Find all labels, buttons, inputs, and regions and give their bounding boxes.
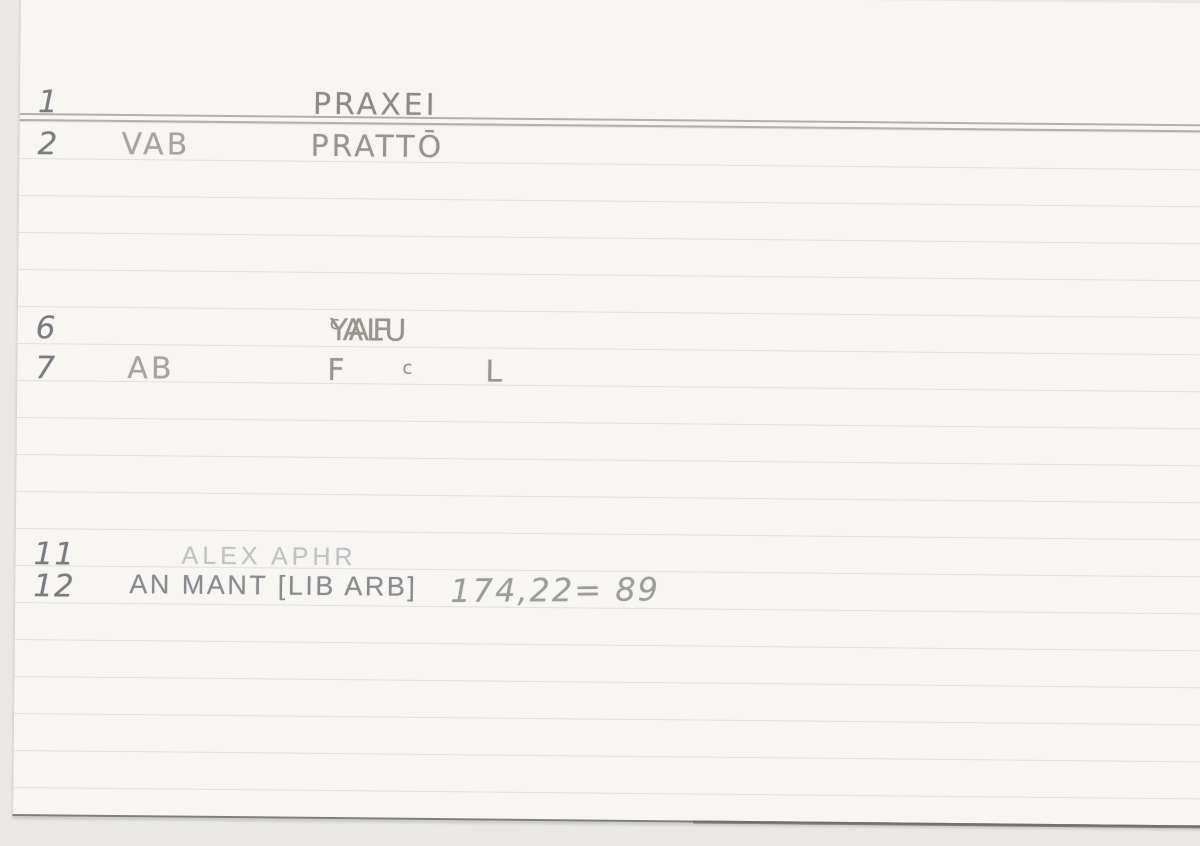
entry-number: 12 (33, 568, 75, 604)
headword-part-post: ALU (343, 313, 410, 349)
ruled-line (16, 491, 1200, 504)
entry-number: 1 (38, 84, 59, 120)
ruled-line (18, 269, 1200, 282)
index-card: 1 PRAXEI 2 VAB PRATTŌ 6 YAFcALU 7 AB F c… (12, 0, 1200, 828)
entry-abbreviation: AB (127, 351, 174, 386)
ruled-line (14, 676, 1200, 689)
entry-number: 6 (36, 310, 57, 346)
entry-superscript-c: c (402, 358, 415, 379)
ruled-line (19, 232, 1200, 245)
ruled-lines (21, 0, 1200, 4)
entry-abbreviation: VAB (121, 127, 190, 163)
rubber-stamp-alex-aphr: ALEX APHR (181, 542, 356, 573)
ruled-line (14, 713, 1200, 726)
rubber-stamp-an-mant: AN MANT [LIB ARB] (129, 569, 417, 603)
entry-letter-f: F (327, 353, 348, 388)
entry-headword: PRATTŌ (310, 129, 444, 165)
entry-letter-l: L (485, 354, 505, 389)
ruled-line (15, 639, 1200, 652)
entry-number: 2 (37, 126, 58, 162)
card-bottom-edge-shadow (693, 821, 1200, 830)
entry-headword: YAFcALU (330, 313, 343, 348)
entry-number: 11 (33, 536, 75, 572)
entry-number: 7 (35, 350, 56, 386)
ruled-line (17, 417, 1200, 430)
ruled-line (14, 750, 1200, 763)
ruled-line (13, 787, 1200, 800)
entry-headword: PRAXEI (313, 87, 438, 123)
entry-row-2: 2 VAB PRATTŌ (19, 126, 1200, 178)
ruled-line (17, 454, 1200, 467)
ruled-line (19, 195, 1200, 208)
entry-reference-number: 174,22= 89 (450, 570, 660, 610)
